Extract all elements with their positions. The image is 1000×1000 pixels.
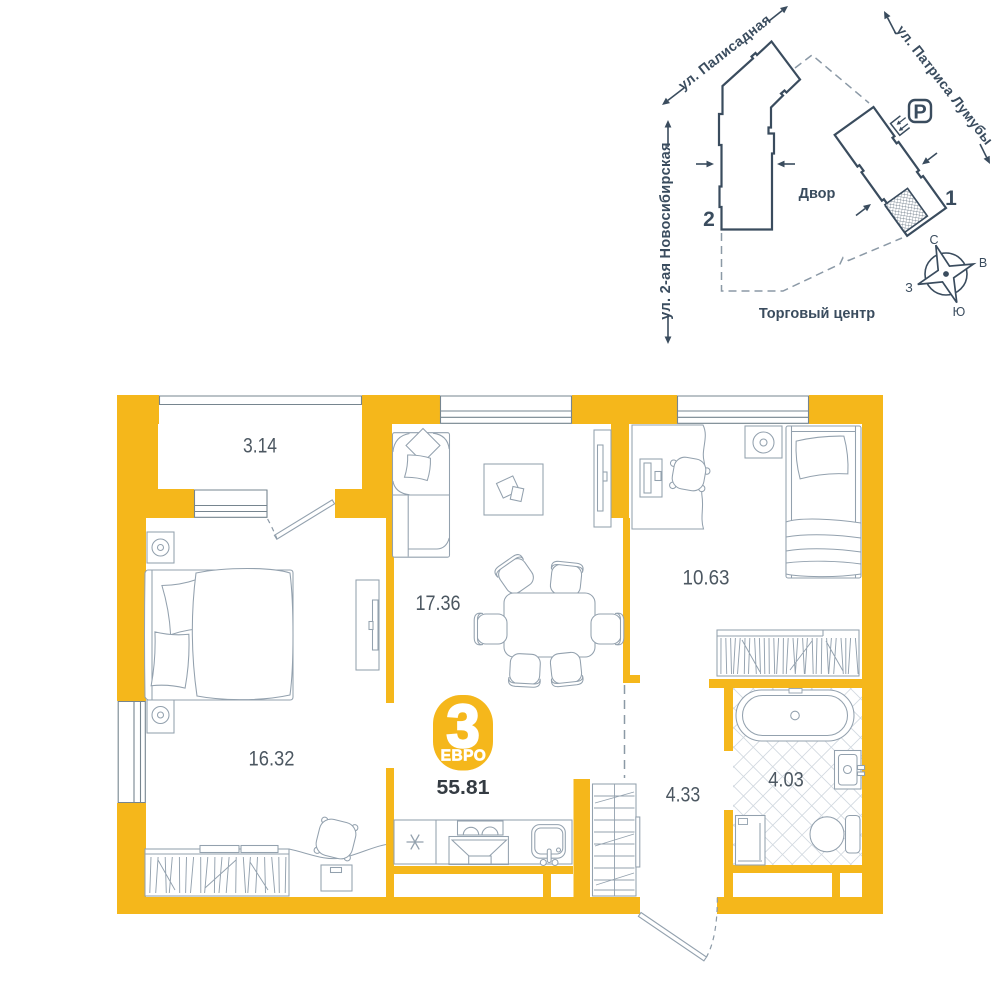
svg-text:В: В (979, 256, 987, 270)
svg-text:55.81: 55.81 (437, 776, 490, 799)
svg-text:Двор: Двор (799, 186, 836, 202)
svg-text:2: 2 (703, 208, 715, 231)
svg-text:P: P (913, 102, 926, 124)
svg-text:4.03: 4.03 (768, 768, 804, 792)
svg-text:ЕВРО: ЕВРО (441, 748, 487, 765)
svg-text:1: 1 (945, 187, 957, 210)
svg-text:16.32: 16.32 (249, 747, 295, 771)
svg-text:С: С (929, 233, 938, 247)
svg-text:ул. 2-ая Новосибирская: ул. 2-ая Новосибирская (658, 142, 674, 319)
svg-text:17.36: 17.36 (416, 591, 461, 615)
svg-text:4.33: 4.33 (666, 783, 701, 807)
svg-text:Ю: Ю (953, 305, 966, 319)
svg-text:3.14: 3.14 (243, 434, 277, 458)
svg-text:10.63: 10.63 (683, 566, 730, 590)
svg-text:З: З (905, 281, 913, 295)
svg-text:Торговый центр: Торговый центр (759, 306, 875, 322)
